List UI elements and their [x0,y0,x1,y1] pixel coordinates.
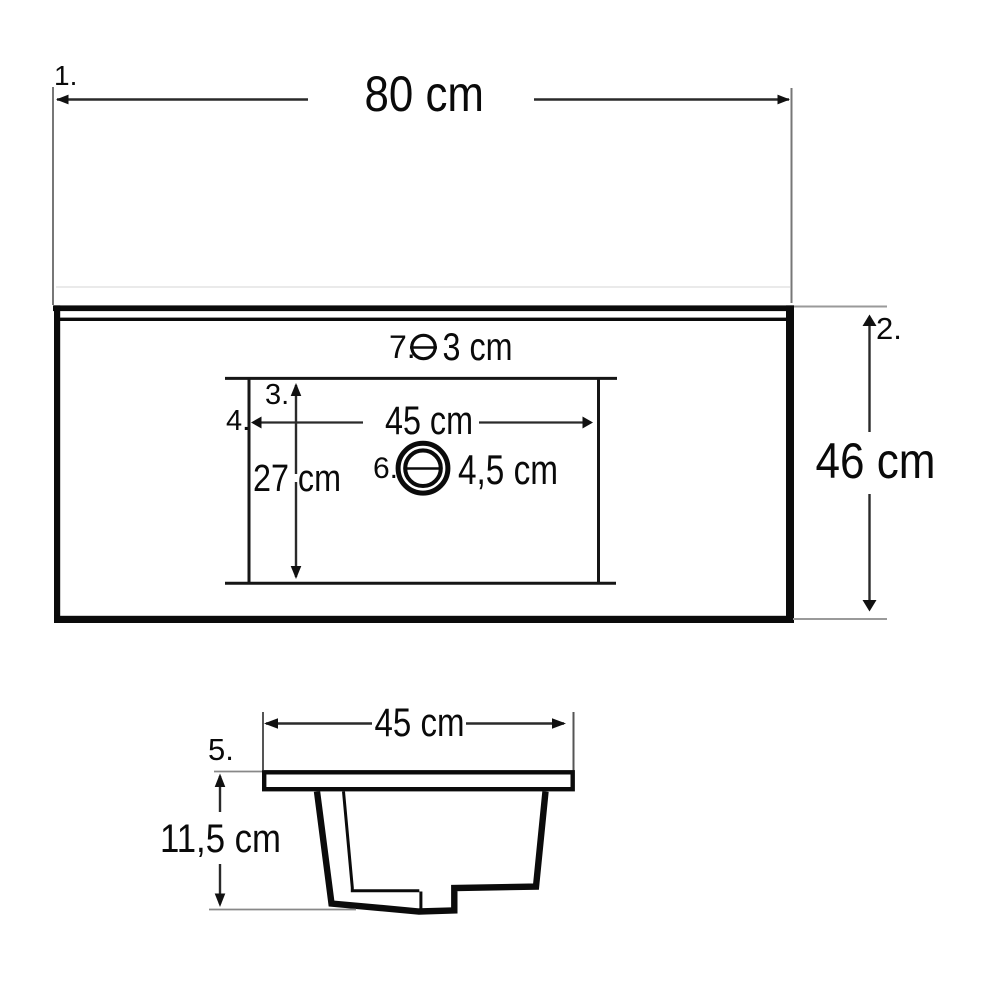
svg-text:3 cm: 3 cm [443,326,513,369]
svg-text:1.: 1. [54,60,77,91]
svg-text:45 cm: 45 cm [385,399,473,443]
svg-text:45 cm: 45 cm [375,701,465,745]
svg-text:11,5 cm: 11,5 cm [160,817,281,861]
svg-text:3.: 3. [265,379,289,411]
svg-text:80 cm: 80 cm [365,66,485,122]
svg-text:2.: 2. [876,311,902,346]
svg-text:5.: 5. [208,732,234,767]
svg-text:46 cm: 46 cm [816,433,936,489]
svg-text:4,5 cm: 4,5 cm [458,446,558,493]
svg-text:6.: 6. [373,452,398,485]
svg-text:4.: 4. [226,405,250,437]
svg-text:27 cm: 27 cm [253,458,341,500]
